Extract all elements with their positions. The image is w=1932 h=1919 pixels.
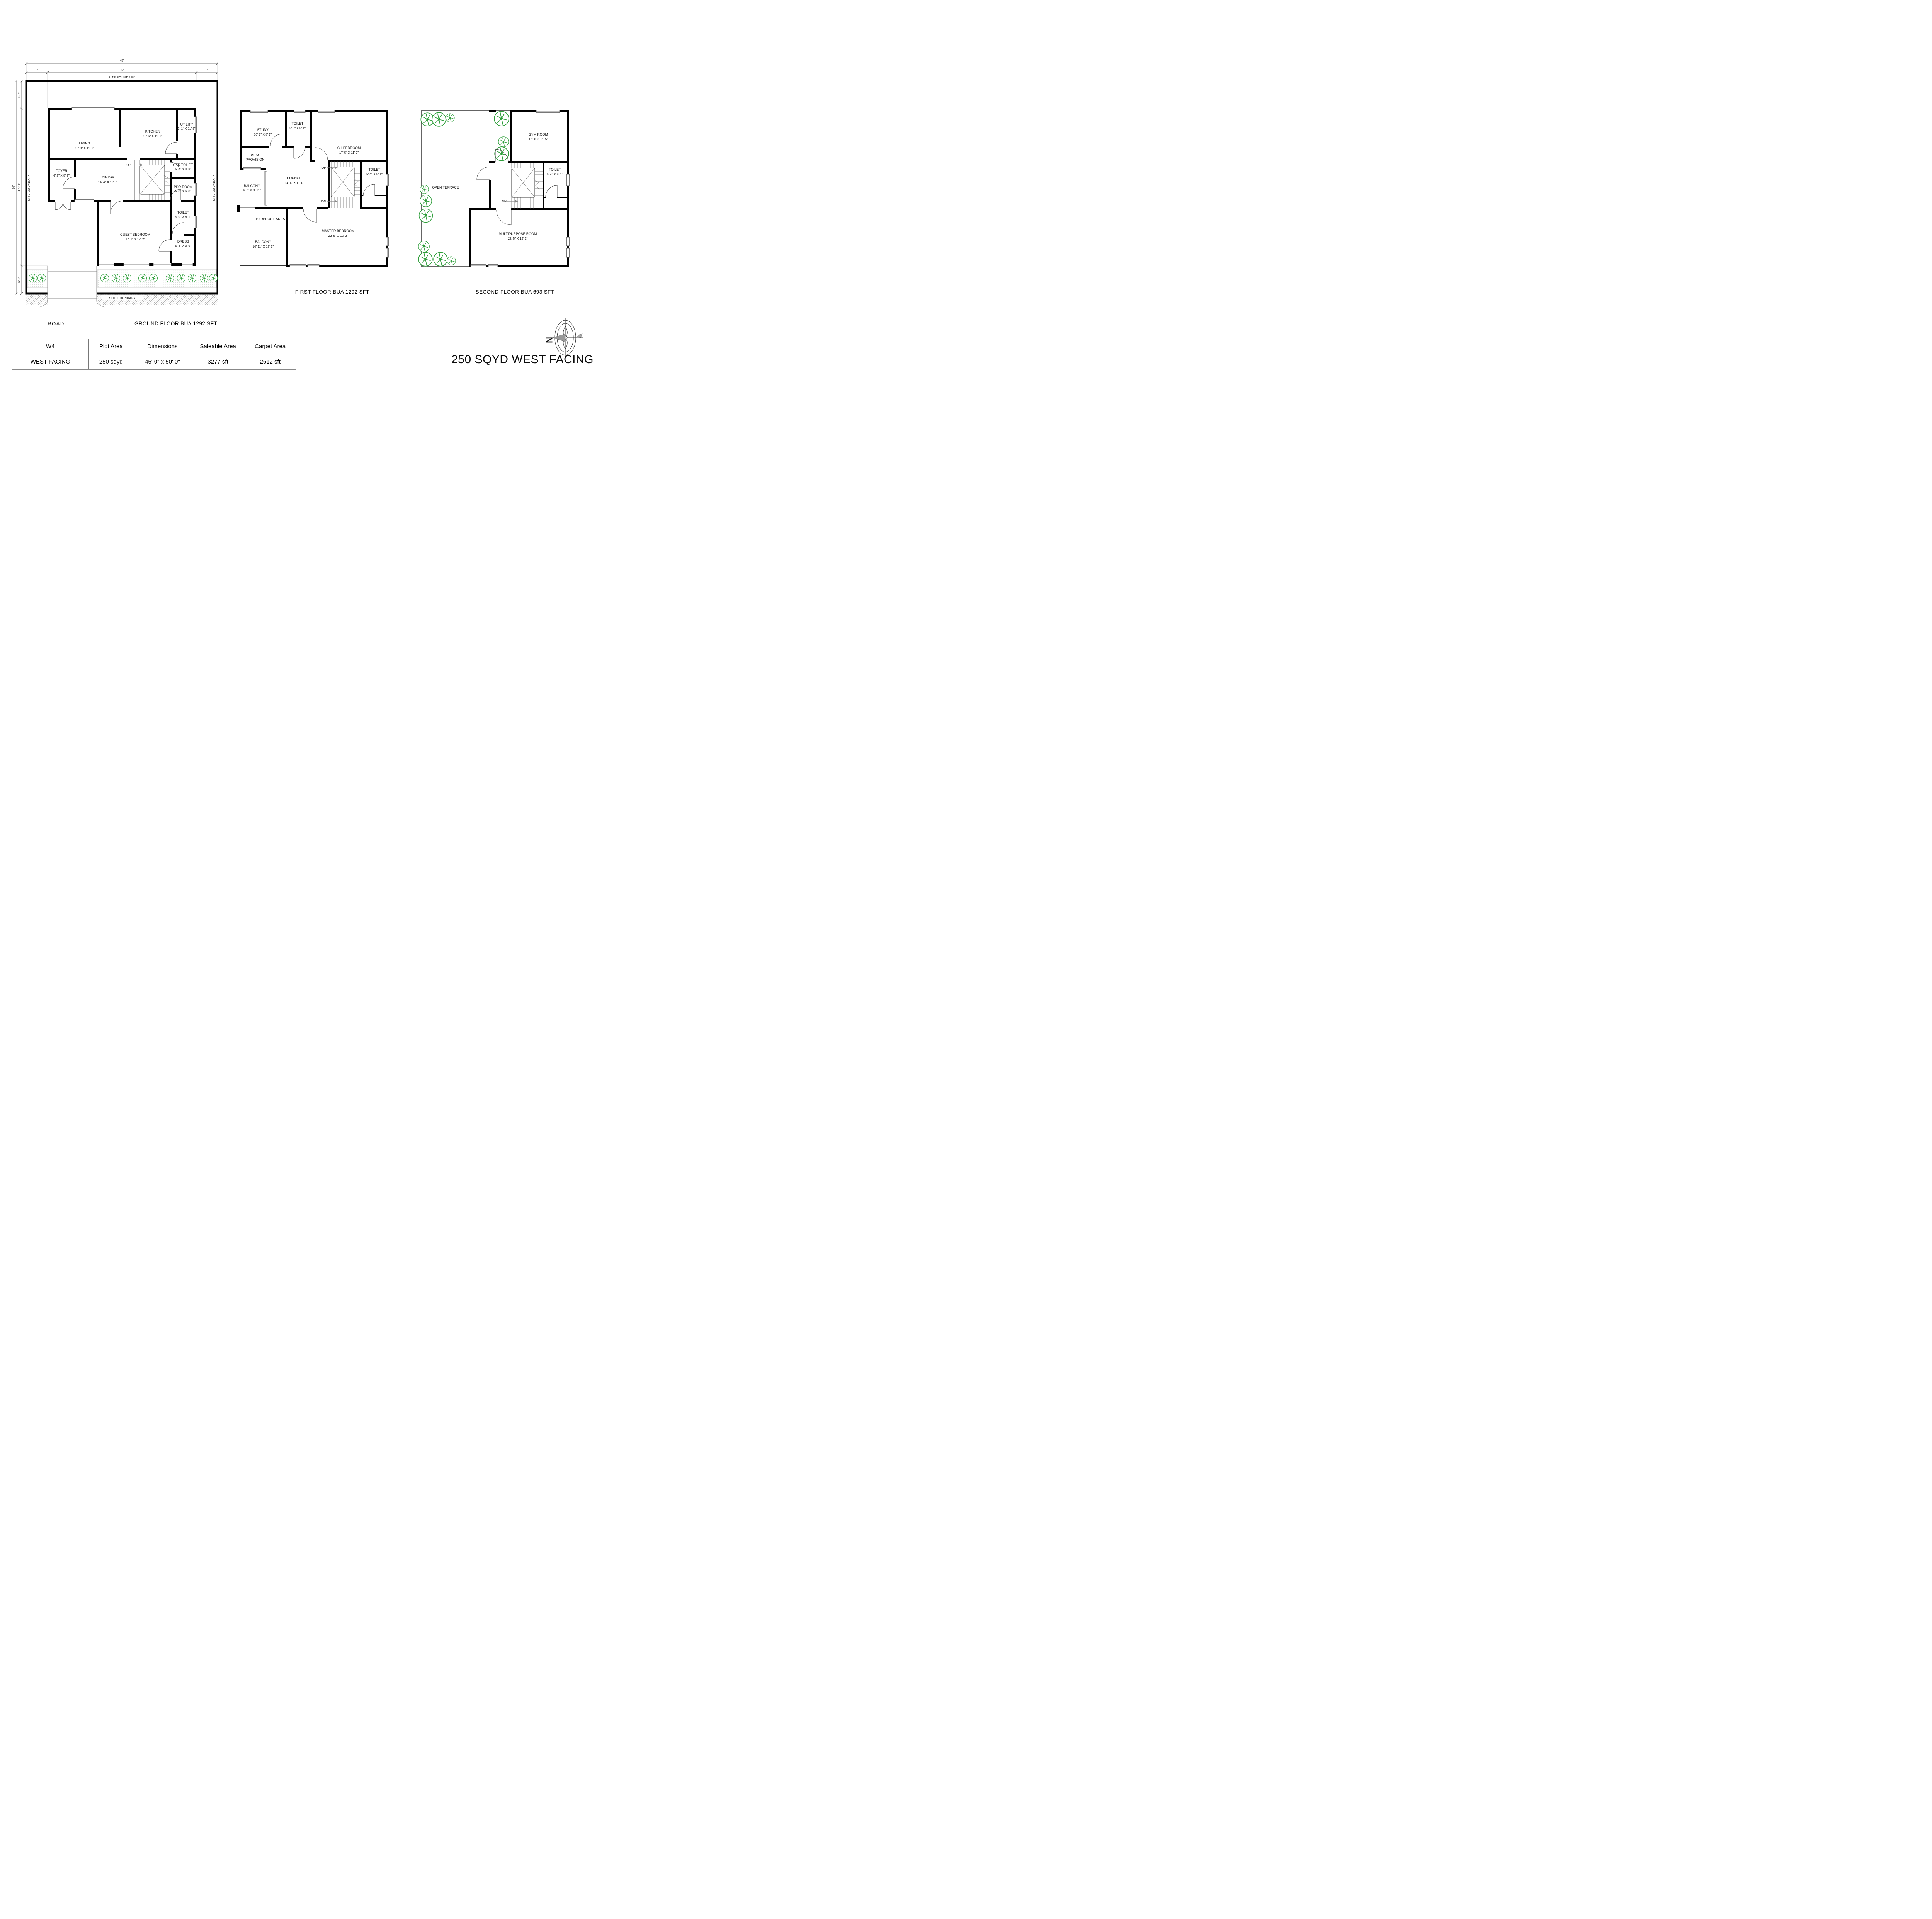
ground-floor-caption: GROUND FLOOR BUA 1292 SFT bbox=[128, 321, 224, 326]
room-living: LIVING bbox=[79, 141, 90, 145]
room-dress: DRESS bbox=[177, 240, 189, 243]
room-guest: GUEST BEDROOM bbox=[120, 233, 150, 236]
room-guest-dims: 17' 1" X 12' 2" bbox=[126, 238, 145, 241]
room-balcony-bottom-dims: 10' 11" X 12' 2" bbox=[253, 245, 274, 248]
room-multipurpose: MULTIPURPOSE ROOM bbox=[499, 232, 537, 236]
room-balcony-side-dims: 6' 2" X 9' 11" bbox=[243, 189, 261, 192]
dim-right-setback: 5' bbox=[206, 68, 208, 72]
second-floor-caption: SECOND FLOOR BUA 693 SFT bbox=[468, 289, 562, 295]
table-header-row: W4 Plot Area Dimensions Saleable Area Ca… bbox=[12, 339, 296, 354]
dn-label: DN bbox=[321, 199, 326, 203]
room-living-dims: 16' 9" X 11' 9" bbox=[75, 146, 94, 150]
sheet-title: 250 SQYD WEST FACING bbox=[425, 353, 594, 366]
value-plot-area: 250 sqyd bbox=[89, 354, 133, 369]
room-master: MASTER BEDROOM bbox=[322, 229, 355, 233]
room-ser-toilet-dims: 5' 0" X 4' 8" bbox=[175, 168, 191, 171]
room-study-dims: 10' 7" X 8' 1" bbox=[254, 133, 272, 136]
room-ch-bedroom: CH BEDROOM bbox=[337, 146, 361, 150]
room-puja-line2: PROVISION bbox=[246, 158, 265, 161]
second-floor-plan: DN GYM ROOM 12' 4" X 11' 5" TOILET 5' 4"… bbox=[413, 102, 581, 274]
room-kitchen-dims: 13' 6" X 11' 9" bbox=[143, 134, 162, 138]
dim-left-setback: 5' bbox=[36, 68, 38, 72]
room-utility-dims: 3' 1" X 11' 5" bbox=[178, 127, 196, 131]
dim-building-width: 35' bbox=[120, 68, 124, 72]
room-multipurpose-dims: 22' 5" X 12' 2" bbox=[508, 237, 528, 240]
value-saleable-area: 3277 sft bbox=[192, 354, 245, 369]
room-gym-dims: 12' 4" X 11' 5" bbox=[529, 138, 548, 141]
room-toilet-top-dims: 5' 0" X 8' 1" bbox=[289, 127, 306, 130]
room-toilet-right-dims: 5' 4" X 8' 1" bbox=[366, 173, 383, 176]
room-balcony-bottom: BALCONY bbox=[255, 240, 271, 244]
plot-summary-table: W4 Plot Area Dimensions Saleable Area Ca… bbox=[12, 339, 296, 370]
room-pdr-dims: 5' 0" X 6' 0" bbox=[175, 190, 191, 193]
room-utility: UTILITY bbox=[180, 122, 193, 126]
room-dining: DINING bbox=[102, 175, 114, 179]
room-foyer-dims: 6' 2" X 8' 9" bbox=[53, 174, 70, 177]
room-dining-dims: 14' 4" X 11' 0" bbox=[98, 180, 117, 184]
room-toilet-top: TOILET bbox=[292, 122, 304, 126]
drawing-sheet: 45' 5' 35' 5' 50' 6'-7" 36'-11" 6'-6" bbox=[0, 0, 597, 422]
dim-building-height: 36'-11" bbox=[17, 183, 21, 192]
room-dress-dims: 5' 4" X 3' 9" bbox=[175, 244, 191, 248]
dim-top-setback: 6'-7" bbox=[17, 92, 21, 98]
second-floor-stairs bbox=[512, 163, 543, 209]
room-kitchen: KITCHEN bbox=[145, 129, 160, 133]
room-toilet-right: TOILET bbox=[369, 168, 381, 172]
value-dimensions: 45' 0" x 50' 0" bbox=[133, 354, 192, 369]
up-label: UP bbox=[126, 163, 131, 167]
room-study: STUDY bbox=[257, 128, 269, 132]
room-gym: GYM ROOM bbox=[529, 133, 548, 136]
header-plot-code: W4 bbox=[12, 339, 89, 354]
header-carpet-area: Carpet Area bbox=[244, 339, 296, 354]
dn-label: DN bbox=[502, 199, 507, 203]
dim-total-width: 45' bbox=[120, 59, 124, 63]
room-pdr: PDR ROOM bbox=[174, 185, 192, 189]
room-ch-bedroom-dims: 17' 5" X 11' 9" bbox=[339, 151, 359, 155]
ground-floor-plan: 45' 5' 35' 5' 50' 6'-7" 36'-11" 6'-6" bbox=[11, 54, 218, 350]
first-floor-plan: UP DN STUDY 10' 7" X 8' 1" TOILET 5' 0" … bbox=[232, 102, 400, 274]
room-foyer: FOYER bbox=[56, 169, 67, 173]
dim-total-height: 50' bbox=[12, 185, 15, 189]
compass-north-label: N bbox=[544, 337, 554, 343]
ground-floor-room-labels: LIVING 16' 9" X 11' 9" KITCHEN 13' 6" X … bbox=[53, 122, 196, 248]
room-balcony-side: BALCONY bbox=[244, 184, 260, 188]
first-floor-caption: FIRST FLOOR BUA 1292 SFT bbox=[286, 289, 379, 295]
up-label: UP bbox=[321, 166, 326, 170]
value-carpet-area: 2612 sft bbox=[244, 354, 296, 369]
second-stairs-dn: DN bbox=[502, 199, 518, 203]
dim-bottom-setback: 6'-6" bbox=[17, 277, 21, 283]
value-facing: WEST FACING bbox=[12, 354, 89, 369]
room-open-terrace: OPEN TERRACE bbox=[432, 185, 459, 189]
room-puja-line1: PUJA bbox=[251, 153, 260, 157]
room-barbeque: BARBEQUE AREA bbox=[256, 217, 285, 221]
room-toilet2f: TOILET bbox=[549, 168, 561, 172]
room-ser-toilet: SER TOILET bbox=[173, 163, 193, 167]
site-boundary-right: SITE BOUNDARY bbox=[212, 174, 216, 201]
site-boundary-bottom: SITE BOUNDARY bbox=[109, 296, 136, 300]
road-label: ROAD bbox=[48, 321, 65, 326]
compass-flag-icon bbox=[577, 334, 582, 338]
header-plot-area: Plot Area bbox=[89, 339, 133, 354]
room-lounge-dims: 14' 4" X 11' 0" bbox=[285, 181, 304, 185]
table-data-row: WEST FACING 250 sqyd 45' 0" x 50' 0" 327… bbox=[12, 354, 296, 370]
site-boundary-top: SITE BOUNDARY bbox=[109, 76, 135, 79]
room-toilet-dims: 5' 0" X 8' 1" bbox=[175, 215, 191, 219]
header-dimensions: Dimensions bbox=[133, 339, 192, 354]
header-saleable-area: Saleable Area bbox=[192, 339, 245, 354]
room-toilet: TOILET bbox=[177, 211, 189, 214]
site-boundary-left: SITE BOUNDARY bbox=[27, 174, 31, 201]
room-lounge: LOUNGE bbox=[287, 176, 301, 180]
room-toilet2f-dims: 5' 4" X 8' 1" bbox=[547, 173, 563, 176]
room-master-dims: 22' 5" X 12' 2" bbox=[328, 234, 348, 238]
